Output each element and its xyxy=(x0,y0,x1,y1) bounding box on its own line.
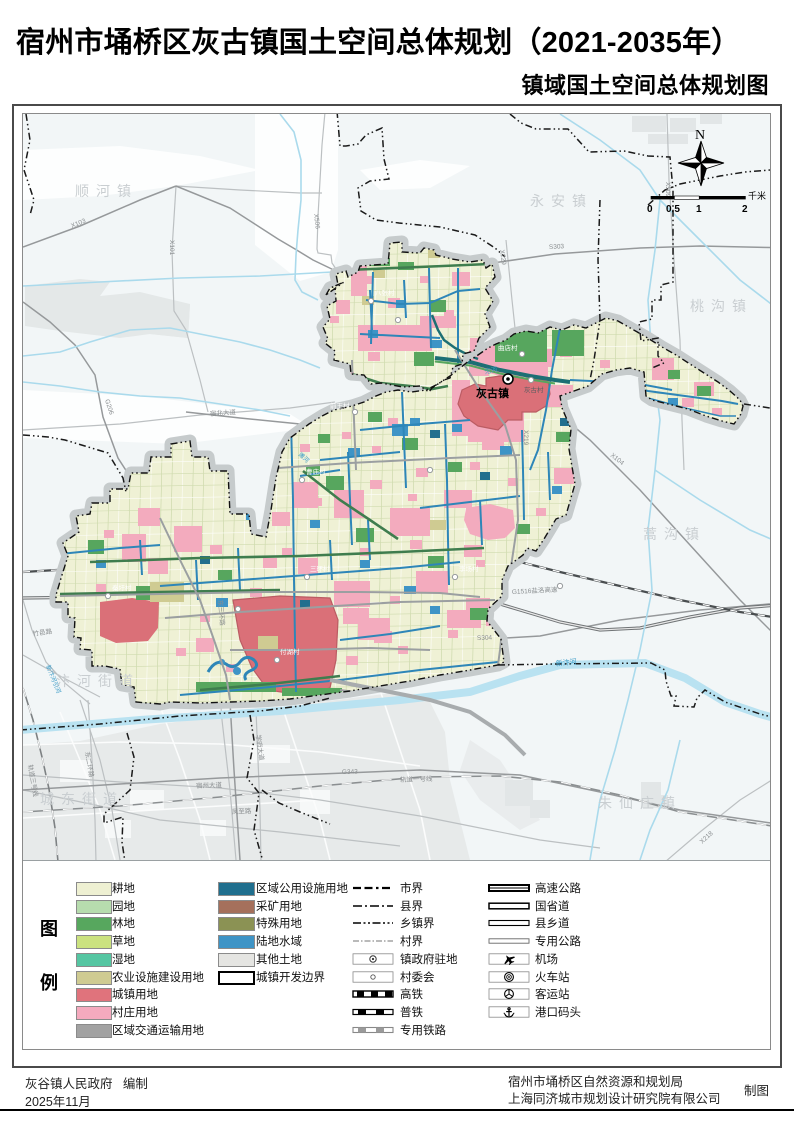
svg-text:S303: S303 xyxy=(549,243,565,251)
svg-text:X101: X101 xyxy=(168,240,175,256)
svg-text:朱仙庄镇: 朱仙庄镇 xyxy=(598,795,682,811)
svg-text:灰古村: 灰古村 xyxy=(524,385,544,394)
svg-text:0.5: 0.5 xyxy=(666,204,680,215)
svg-text:三环村: 三环村 xyxy=(310,564,330,573)
svg-text:1: 1 xyxy=(696,204,702,215)
svg-text:付湖村: 付湖村 xyxy=(280,647,300,656)
svg-text:城东街道: 城东街道 xyxy=(40,791,124,807)
svg-text:桃沟镇: 桃沟镇 xyxy=(690,298,753,314)
svg-text:千米: 千米 xyxy=(748,190,766,201)
svg-text:S304: S304 xyxy=(477,634,493,642)
svg-text:蒿沟镇: 蒿沟镇 xyxy=(643,526,706,542)
svg-text:八张村: 八张村 xyxy=(375,288,395,297)
svg-text:永安镇: 永安镇 xyxy=(530,193,593,209)
svg-text:曹庙村: 曹庙村 xyxy=(306,467,326,476)
svg-text:G343: G343 xyxy=(342,768,359,776)
svg-text:顺河镇: 顺河镇 xyxy=(75,183,138,199)
svg-text:N: N xyxy=(695,128,705,143)
svg-text:汴河街道: 汴河街道 xyxy=(56,673,140,689)
svg-text:X219: X219 xyxy=(522,430,529,446)
svg-text:0: 0 xyxy=(647,204,653,215)
svg-text:灰古镇: 灰古镇 xyxy=(476,386,509,400)
svg-text:X509: X509 xyxy=(664,182,671,198)
svg-text:秦圩村: 秦圩村 xyxy=(112,583,132,592)
svg-text:曲店村: 曲店村 xyxy=(498,343,518,352)
svg-text:李场村: 李场村 xyxy=(459,564,479,573)
svg-text:前王村: 前王村 xyxy=(330,401,350,410)
svg-text:2: 2 xyxy=(742,204,748,215)
